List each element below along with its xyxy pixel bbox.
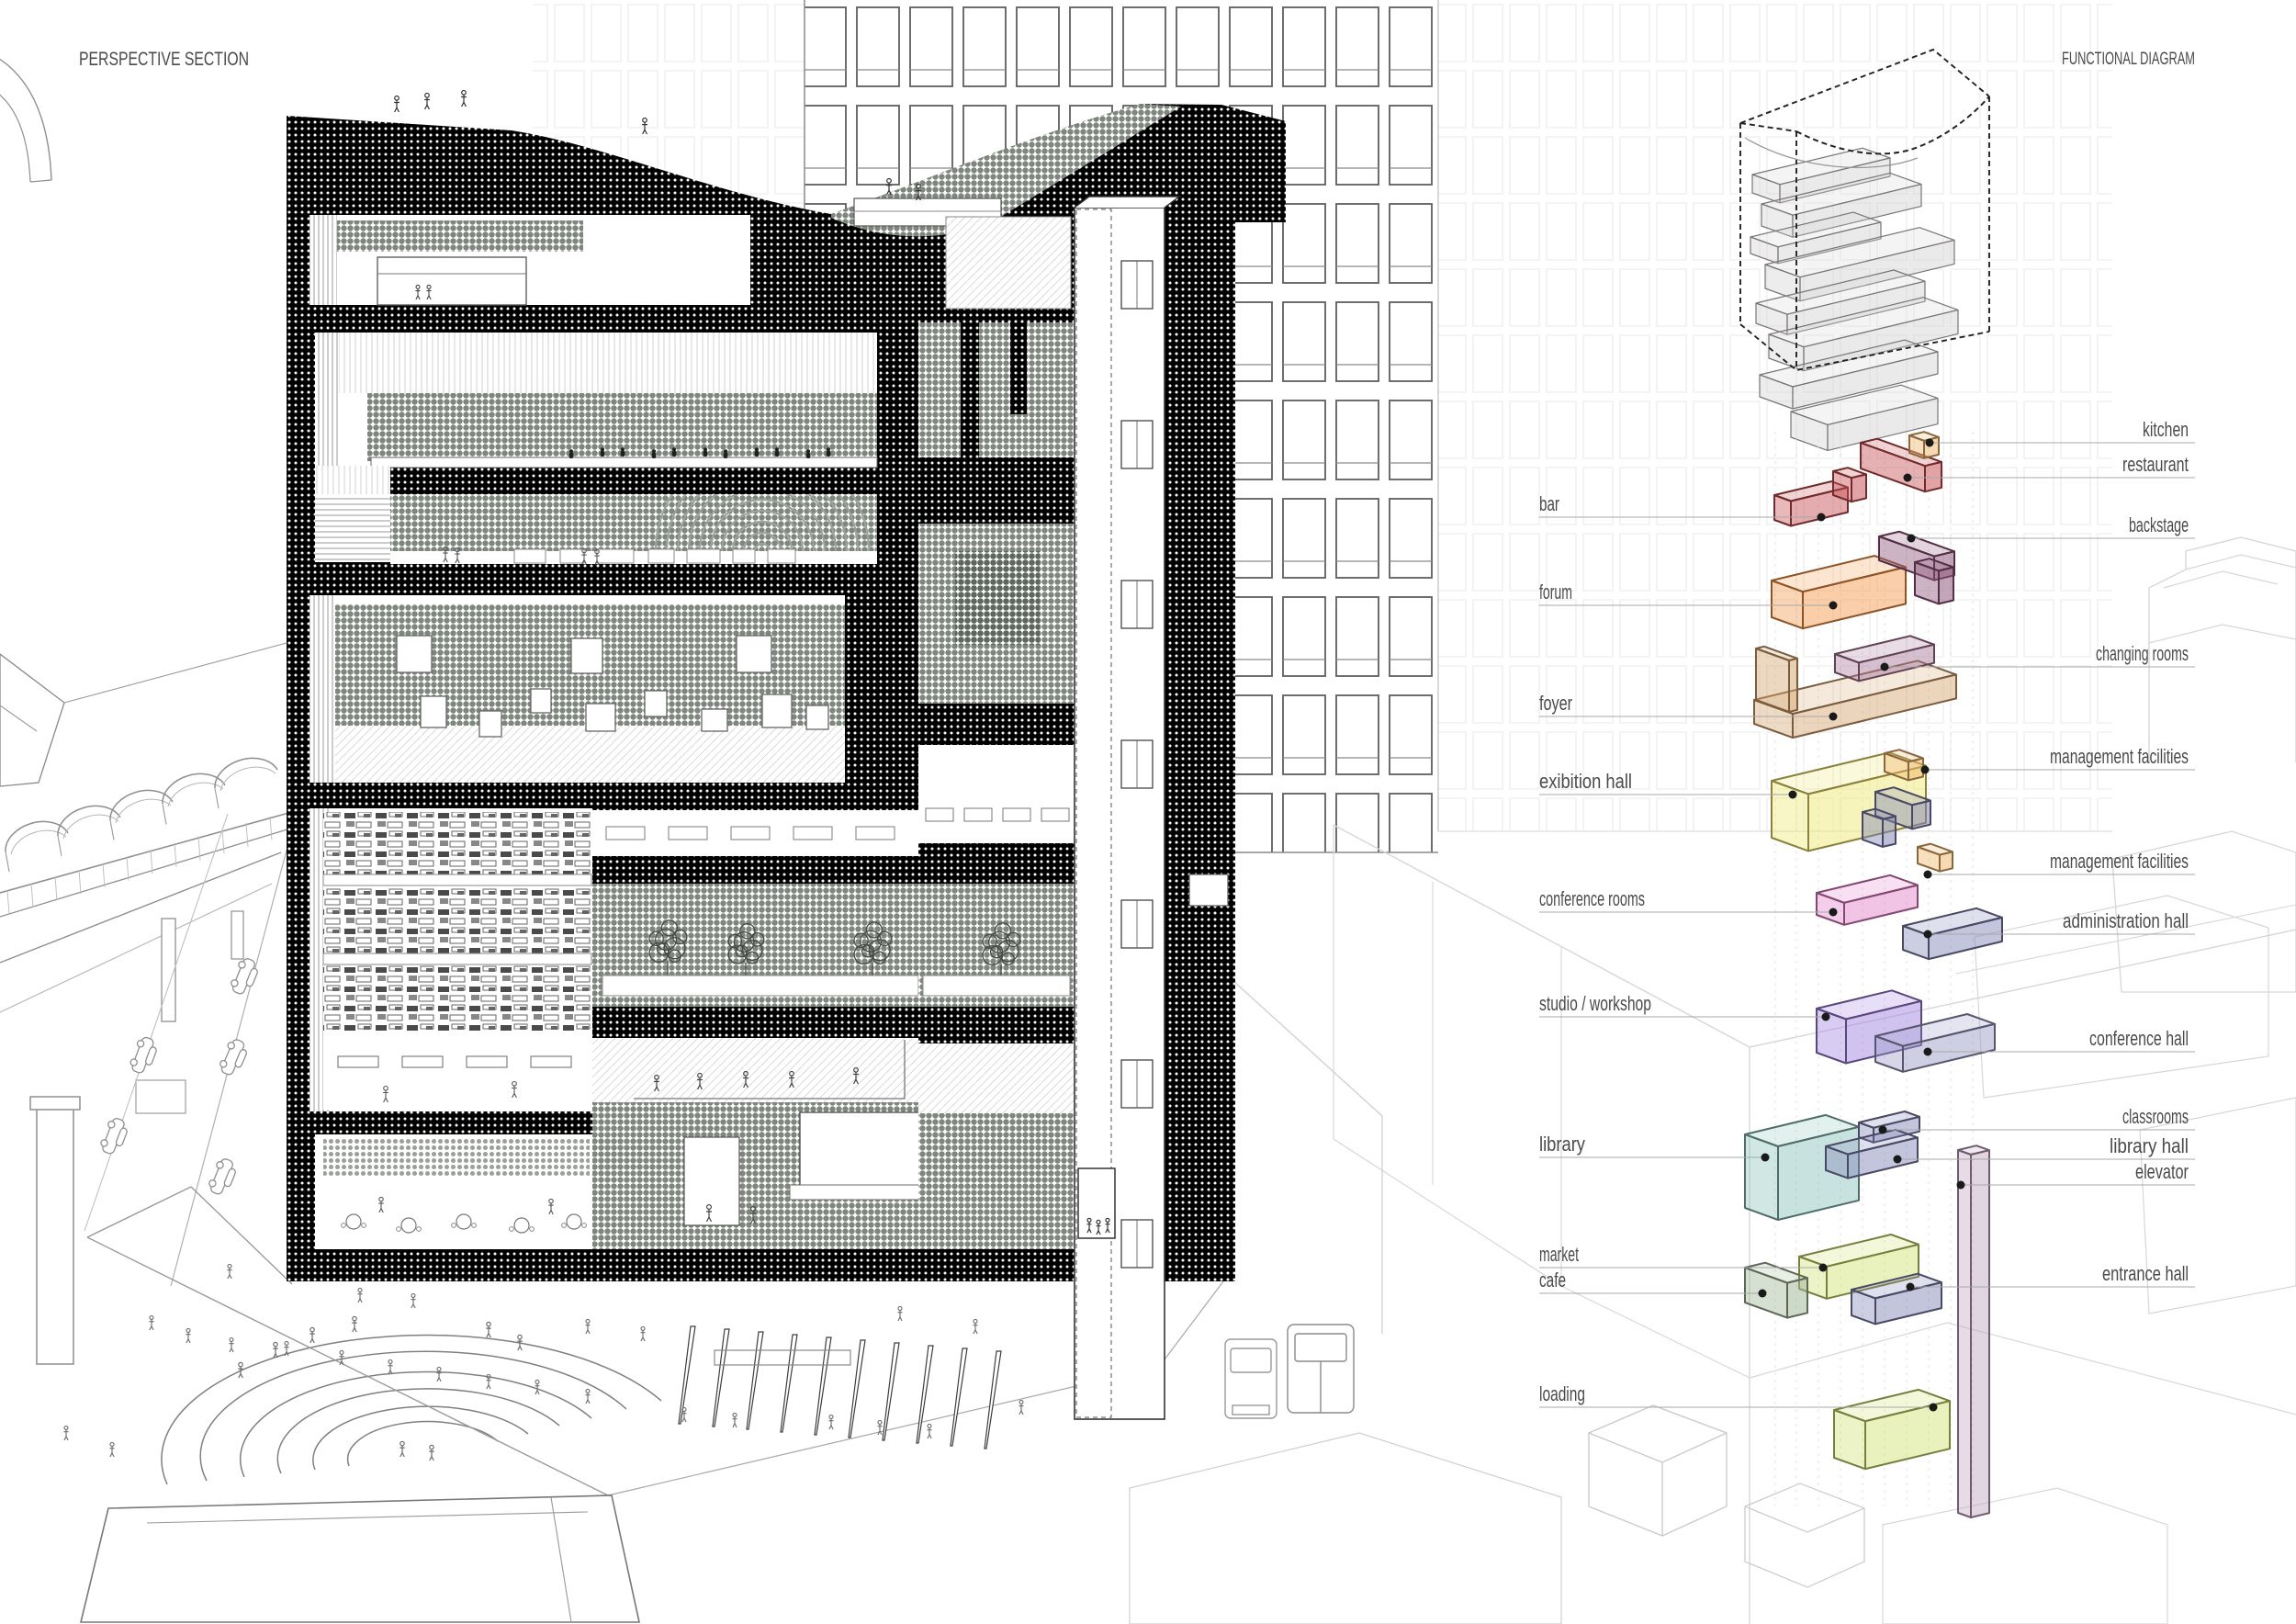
svg-text:conference hall: conference hall bbox=[2089, 1027, 2189, 1050]
svg-text:management facilities: management facilities bbox=[2050, 850, 2189, 873]
svg-text:management facilities: management facilities bbox=[2050, 745, 2189, 768]
svg-text:conference rooms: conference rooms bbox=[1539, 887, 1645, 910]
svg-text:restaurant: restaurant bbox=[2122, 453, 2189, 476]
svg-text:foyer: foyer bbox=[1539, 692, 1572, 715]
svg-text:market: market bbox=[1539, 1243, 1579, 1266]
svg-text:PERSPECTIVE SECTION: PERSPECTIVE SECTION bbox=[79, 49, 249, 70]
svg-text:library hall: library hall bbox=[2110, 1134, 2189, 1157]
svg-text:library: library bbox=[1539, 1133, 1585, 1156]
svg-text:entrance hall: entrance hall bbox=[2102, 1262, 2189, 1285]
svg-text:studio / workshop: studio / workshop bbox=[1539, 992, 1651, 1015]
svg-text:cafe: cafe bbox=[1539, 1269, 1566, 1291]
svg-text:loading: loading bbox=[1539, 1382, 1585, 1405]
svg-text:administration hall: administration hall bbox=[2063, 909, 2189, 932]
svg-text:backstage: backstage bbox=[2129, 513, 2189, 536]
svg-text:forum: forum bbox=[1539, 581, 1572, 603]
svg-text:bar: bar bbox=[1539, 492, 1559, 515]
svg-text:classrooms: classrooms bbox=[2122, 1105, 2189, 1128]
svg-text:FUNCTIONAL DIAGRAM: FUNCTIONAL DIAGRAM bbox=[2062, 50, 2195, 69]
svg-text:exibition hall: exibition hall bbox=[1539, 770, 1632, 793]
svg-text:changing rooms: changing rooms bbox=[2096, 642, 2189, 665]
svg-text:elevator: elevator bbox=[2135, 1160, 2189, 1183]
svg-text:kitchen: kitchen bbox=[2143, 418, 2189, 441]
